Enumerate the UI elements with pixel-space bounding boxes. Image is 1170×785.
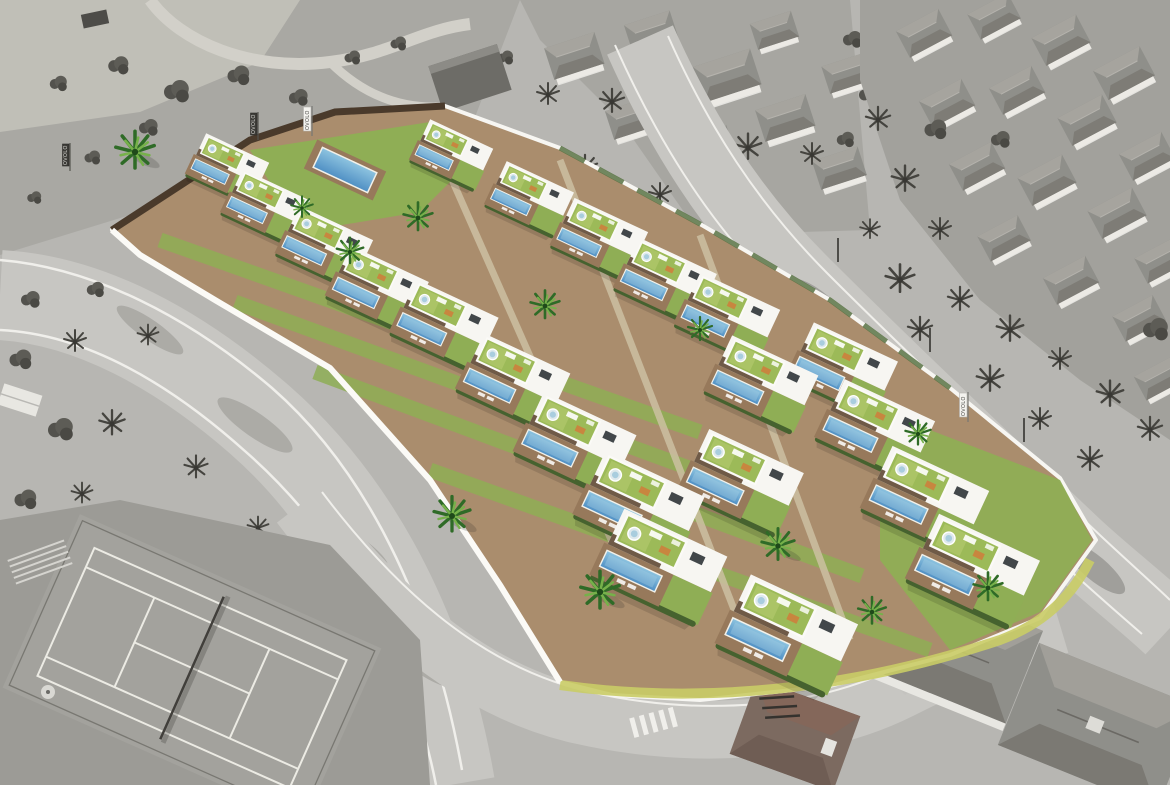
aerial-photo: OVOLO OVOLO <box>0 0 1170 785</box>
umbrella-pole <box>46 690 50 694</box>
